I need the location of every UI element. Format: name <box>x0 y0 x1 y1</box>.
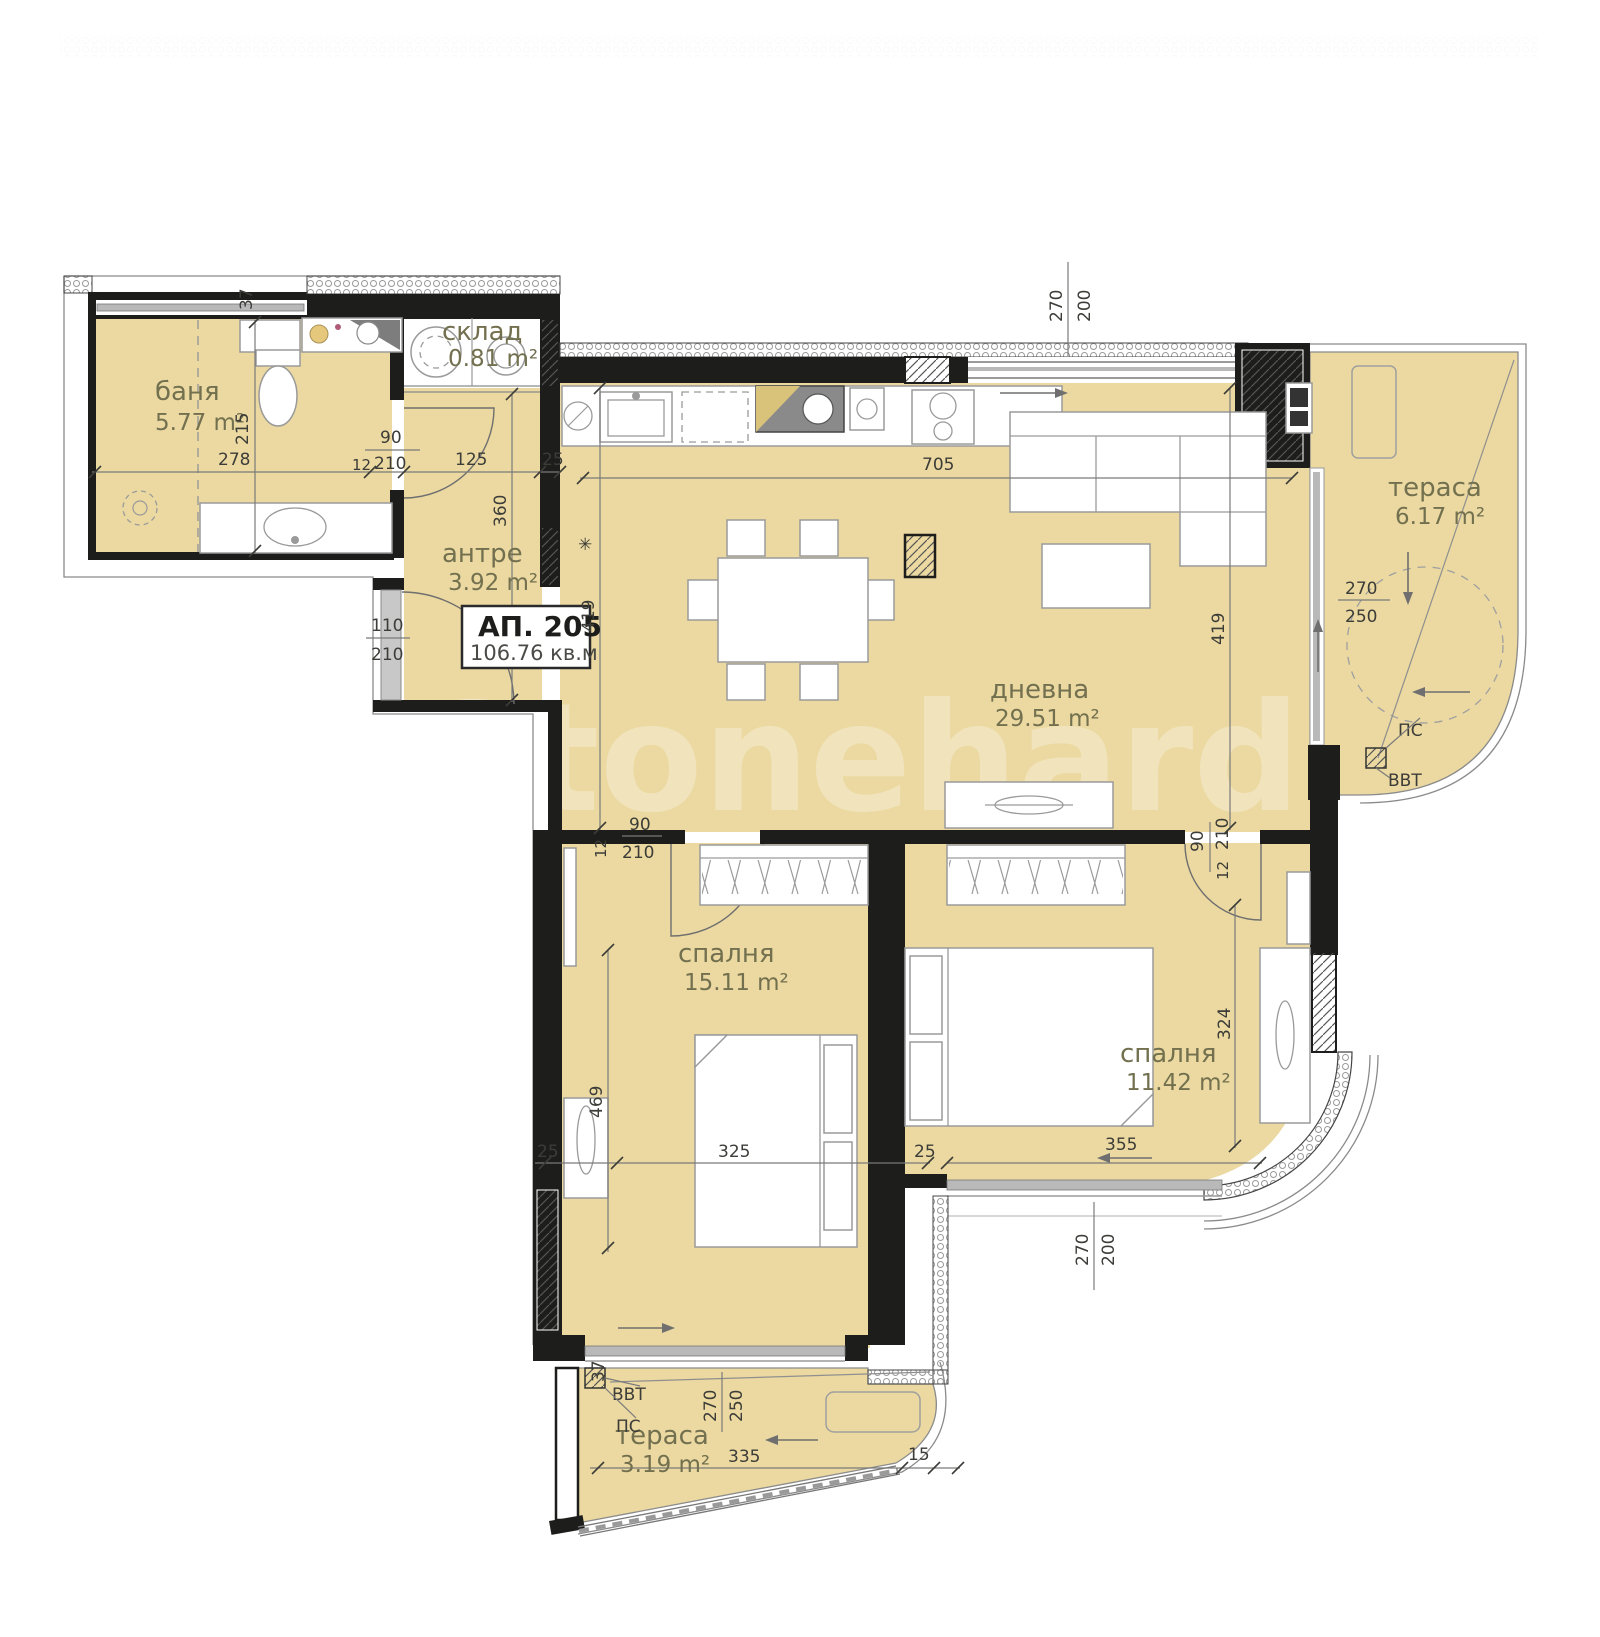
dim-topwin-h: 200 <box>1075 290 1095 322</box>
terrace-right-name: тераса <box>1388 473 1482 503</box>
dim-topwin-w: 270 <box>1047 290 1067 322</box>
storage-top-wall <box>307 294 560 319</box>
living-se-wall <box>1308 745 1340 800</box>
bath-name: баня <box>155 377 220 407</box>
vvt-right-label: ВВТ <box>1388 771 1422 791</box>
insulation-corner <box>64 276 92 293</box>
chair <box>688 580 720 620</box>
terrace-right-area: 6.17 m² <box>1395 504 1485 530</box>
hatch-column-a <box>542 320 558 386</box>
bedroom1-name: спалня <box>678 939 774 969</box>
ps-right-label: ПС <box>1398 721 1423 741</box>
terrace-pillar <box>556 1368 578 1520</box>
dim-b2door-h: 210 <box>1213 818 1233 850</box>
hall-name: антре <box>442 539 523 569</box>
dim-b2win-h: 200 <box>1099 1234 1119 1266</box>
dim-terb-15: 15 <box>908 1445 930 1465</box>
dim-b1door-h: 210 <box>622 843 654 863</box>
dim-living-w: 705 <box>922 455 954 475</box>
dim-terr-w: 270 <box>1345 579 1377 599</box>
floor-plan-drawing: Stonehard <box>0 0 1600 1637</box>
dim-bath-h: 215 <box>233 413 253 445</box>
desk <box>1260 948 1310 1123</box>
dim-entry-h: 210 <box>371 645 403 665</box>
dim-wall25c: 25 <box>914 1142 936 1162</box>
dim-bed1-w: 325 <box>718 1142 750 1162</box>
hatch-column-c <box>905 357 950 383</box>
dim-bed1-v: 469 <box>587 1086 607 1118</box>
kitchen-top-wall <box>560 357 905 383</box>
hatch-column-d <box>1312 952 1336 1052</box>
dim-bed2-v: 324 <box>1215 1008 1235 1040</box>
bedroom2-name: спалня <box>1120 1039 1216 1069</box>
dining-table <box>718 558 868 662</box>
bath-ledge <box>240 320 300 352</box>
chair <box>727 520 765 556</box>
toilet <box>259 366 297 426</box>
floor-plan-page: Stonehard <box>0 0 1600 1637</box>
dim-top37: 37 <box>237 288 257 310</box>
corridor-left-wall <box>548 707 562 844</box>
bath-area: 5.77 m² <box>155 410 245 436</box>
living-area: 29.51 m² <box>995 706 1100 732</box>
wardrobe-1-rail <box>702 860 866 903</box>
hall-bottom-wall <box>404 700 562 712</box>
dim-b1door-w: 90 <box>629 815 651 835</box>
bedroom2-right-wall <box>1310 795 1338 955</box>
dim-entry-w: 110 <box>371 616 403 636</box>
toilet-tank <box>256 350 300 366</box>
hall-area: 3.92 m² <box>448 570 538 596</box>
terrace-sliding-door <box>1313 472 1320 741</box>
dim-hall-h: 360 <box>491 495 511 527</box>
top-artifact-band <box>60 36 1540 58</box>
dim-bathdoor-wall: 12 <box>352 456 371 474</box>
bath-top-wall-outer <box>88 292 307 300</box>
bedroom2-window <box>947 1180 1222 1190</box>
chair <box>800 664 838 700</box>
dim-terb-h: 250 <box>727 1390 747 1422</box>
dim-bath-w: 278 <box>218 450 250 470</box>
vvt-bottom-label: ВВТ <box>612 1385 646 1405</box>
dim-bathdoor-h: 210 <box>374 454 406 474</box>
bedroom1-window <box>585 1346 845 1356</box>
dim-v419a: 419 <box>579 600 599 632</box>
dim-terb-len: 335 <box>728 1447 760 1467</box>
living-column <box>905 535 935 577</box>
terrace-bottom-area: 3.19 m² <box>620 1452 710 1478</box>
bath-left-wall <box>88 292 96 560</box>
dim-terr-h: 250 <box>1345 607 1377 627</box>
bedroom1-area: 15.11 m² <box>684 970 789 996</box>
drain-right <box>1366 748 1386 768</box>
dresser <box>1287 872 1310 944</box>
radiator <box>564 848 576 966</box>
bedroom-divider-wall <box>868 843 905 1345</box>
wardrobe-2-rail <box>949 860 1123 903</box>
storage-name: склад <box>442 317 523 347</box>
chair <box>727 664 765 700</box>
dim-b1door-wall: 12 <box>592 839 610 858</box>
dim-bed2-w: 355 <box>1105 1135 1137 1155</box>
pillow <box>824 1045 852 1133</box>
dim-hall-w: 125 <box>455 450 487 470</box>
dim-b2win-w: 270 <box>1073 1234 1093 1266</box>
chair <box>800 520 838 556</box>
hob <box>912 390 974 444</box>
hatch-column-b <box>542 528 558 585</box>
dim-wall25a: 25 <box>542 450 564 470</box>
pillow <box>910 956 942 1034</box>
dim-terb-w: 270 <box>701 1390 721 1422</box>
kitchen-small-unit <box>850 388 884 430</box>
pillow <box>910 1042 942 1120</box>
coffee-table <box>1042 544 1150 608</box>
bedroom2-area: 11.42 m² <box>1126 1070 1231 1096</box>
dim-bathdoor-w: 90 <box>380 428 402 448</box>
storage-area: 0.81 m² <box>448 346 538 372</box>
mesh-wall-v <box>933 1196 948 1384</box>
asterisk-symbol: ✳ <box>578 535 592 555</box>
living-name: дневна <box>990 675 1089 705</box>
insulation-top <box>307 276 560 294</box>
bath-window <box>97 304 304 311</box>
dim-b2door-wall: 12 <box>1214 861 1232 880</box>
apartment-area: 106.76 кв.м <box>470 641 598 665</box>
ps-bottom-label: ПС <box>616 1417 641 1437</box>
pillow <box>824 1142 852 1230</box>
dim-v419b: 419 <box>1209 613 1229 645</box>
insulation-living-top <box>560 343 1248 357</box>
dim-wall25b: 25 <box>537 1142 559 1162</box>
dim-b2door-w: 90 <box>1188 830 1208 852</box>
